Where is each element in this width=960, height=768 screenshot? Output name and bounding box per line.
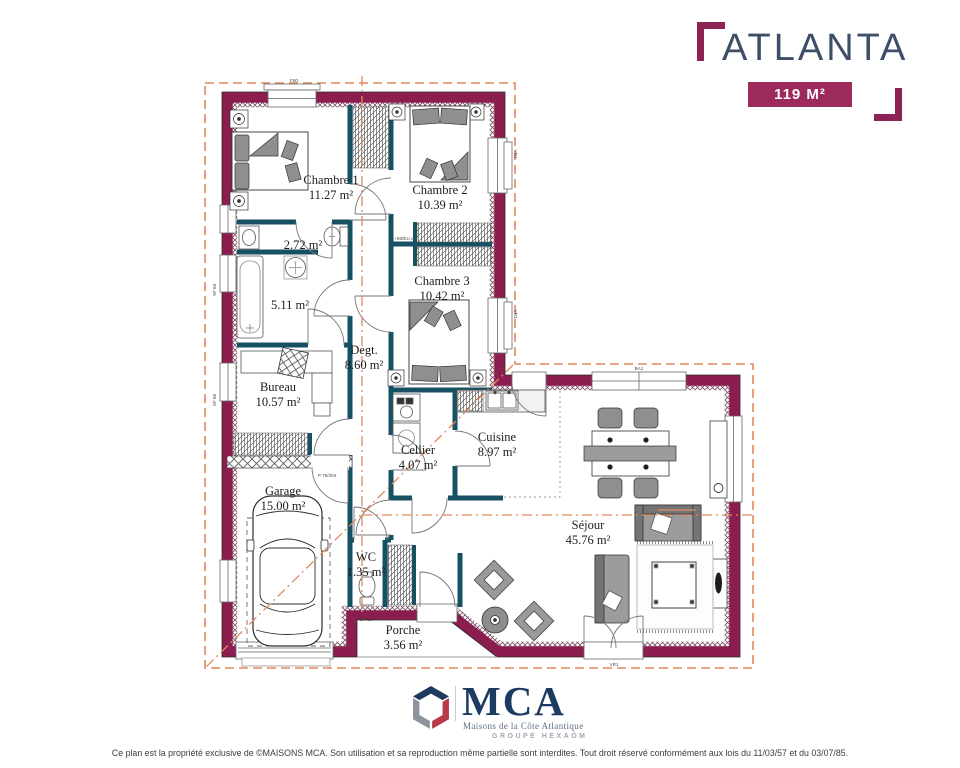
logo-subtitle: Maisons de la Côte Atlantique	[463, 721, 584, 731]
label-door-ref: P 75/204	[318, 473, 337, 478]
room-area-chambre1: 11.27 m²	[309, 188, 354, 202]
label-window-ch3: VR1	[513, 310, 518, 319]
dining-table	[584, 408, 676, 498]
room-area-wc: 1.35 m²	[347, 565, 386, 579]
garage-apron	[242, 658, 330, 666]
room-label-cellier: Cellier	[401, 443, 436, 457]
french-door-opening	[584, 642, 643, 659]
room-area-degagement: 8.60 m²	[345, 358, 384, 372]
floor-plan: Chambre 1 11.27 m² Chambre 2 10.39 m² Ch…	[0, 0, 960, 768]
bathtub	[237, 256, 263, 338]
label-window-top: F60	[290, 78, 298, 83]
dishwasher	[458, 391, 483, 411]
bathroom-sink	[284, 256, 307, 279]
room-area-sejour: 45.76 m²	[566, 533, 611, 547]
label-door-sejour: VR1	[610, 662, 619, 667]
closet-bureau	[234, 433, 308, 455]
armchair-1	[474, 560, 514, 600]
sofa-1	[635, 505, 701, 541]
label-window-bureau: SF 60	[212, 393, 217, 406]
desk-chair	[278, 348, 309, 379]
bed-chambre-1	[230, 110, 308, 210]
chair	[598, 408, 622, 428]
mca-cube-icon	[410, 686, 452, 730]
rug	[637, 543, 713, 632]
room-area-bathroom: 5.11 m²	[271, 298, 309, 312]
bed-chambre-2	[389, 104, 484, 182]
label-window-bath: SF 60	[212, 283, 217, 296]
logo-divider	[455, 686, 456, 721]
copyright-notice: Ce plan est la propriété exclusive de ©M…	[0, 748, 960, 758]
label-bay-top: BA1	[635, 366, 644, 371]
corner-bracket-bottom-right	[874, 88, 902, 121]
car	[247, 496, 330, 646]
room-label-chambre3: Chambre 3	[414, 274, 469, 288]
mca-logo: MCA Maisons de la Côte Atlantique GROUPE…	[410, 684, 670, 746]
room-label-wc: WC	[356, 550, 376, 564]
kitchen-counter	[457, 390, 545, 412]
room-area-bureau: 10.57 m²	[256, 395, 301, 409]
coffee-table	[652, 562, 696, 608]
room-label-degagement: Degt.	[350, 343, 377, 357]
window-frame	[264, 84, 320, 90]
closet-hall	[388, 545, 412, 605]
room-area-porche: 3.56 m²	[384, 638, 423, 652]
room-label-chambre2: Chambre 2	[412, 183, 467, 197]
garage-partition-door-gap	[311, 454, 349, 470]
area-badge: 119 M²	[748, 82, 852, 107]
window-ch2-shutter	[504, 142, 512, 189]
room-label-chambre1: Chambre 1	[303, 173, 358, 187]
room-label-sejour: Séjour	[572, 518, 605, 532]
sofa-2	[595, 555, 629, 623]
room-area-cellier: 4.07 m²	[399, 458, 438, 472]
label-window-ch2: VR1	[513, 150, 518, 159]
room-area-cuisine: 8.97 m²	[478, 445, 517, 459]
room-area-chambre3: 10.42 m²	[420, 289, 465, 303]
label-closet-ref: +80/EU d	[394, 236, 414, 241]
closet-ch3	[417, 247, 491, 266]
side-table	[482, 607, 508, 633]
chair	[634, 408, 658, 428]
plan-title: ATLANTA	[722, 27, 908, 70]
label-porch-sill: SP 10	[360, 617, 373, 622]
closet-ch2	[417, 223, 491, 242]
armchair-2	[514, 601, 554, 641]
chair	[598, 478, 622, 498]
entry-door-opening	[512, 372, 546, 390]
room-area-garage: 15.00 m²	[261, 499, 306, 513]
logo-group-name: GROUPE HEXAŌM	[492, 733, 588, 740]
porch-door-opening	[417, 604, 457, 622]
room-label-garage: Garage	[265, 484, 302, 498]
corner-bracket-top-left	[697, 22, 725, 61]
room-area-toilet: 2.72 m²	[284, 238, 323, 252]
room-label-cuisine: Cuisine	[478, 430, 517, 444]
chair	[634, 478, 658, 498]
room-area-chambre2: 10.39 m²	[418, 198, 463, 212]
room-label-bureau: Bureau	[260, 380, 297, 394]
room-label-porche: Porche	[386, 623, 421, 637]
closet-ch1	[353, 107, 389, 168]
logo-wordmark: MCA	[462, 677, 566, 725]
bed-chambre-3	[388, 300, 486, 386]
window-ch3-shutter	[504, 302, 512, 349]
